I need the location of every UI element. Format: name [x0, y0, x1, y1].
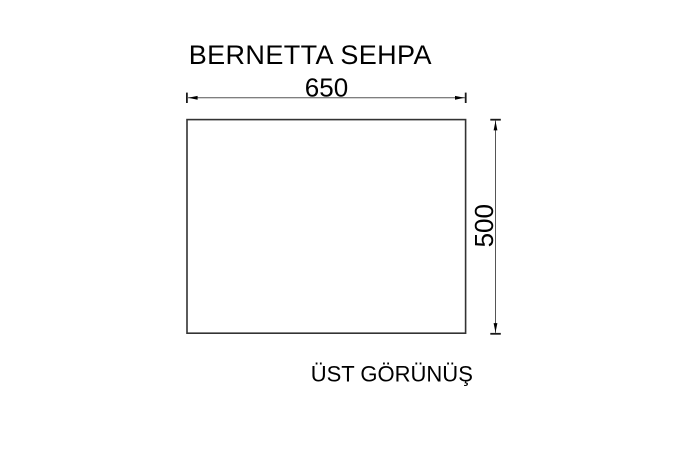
svg-text:650: 650	[305, 72, 348, 102]
svg-text:BERNETTA SEHPA: BERNETTA SEHPA	[189, 40, 432, 70]
svg-text:500: 500	[469, 204, 499, 247]
svg-text:ÜST GÖRÜNÜŞ: ÜST GÖRÜNÜŞ	[311, 361, 473, 386]
